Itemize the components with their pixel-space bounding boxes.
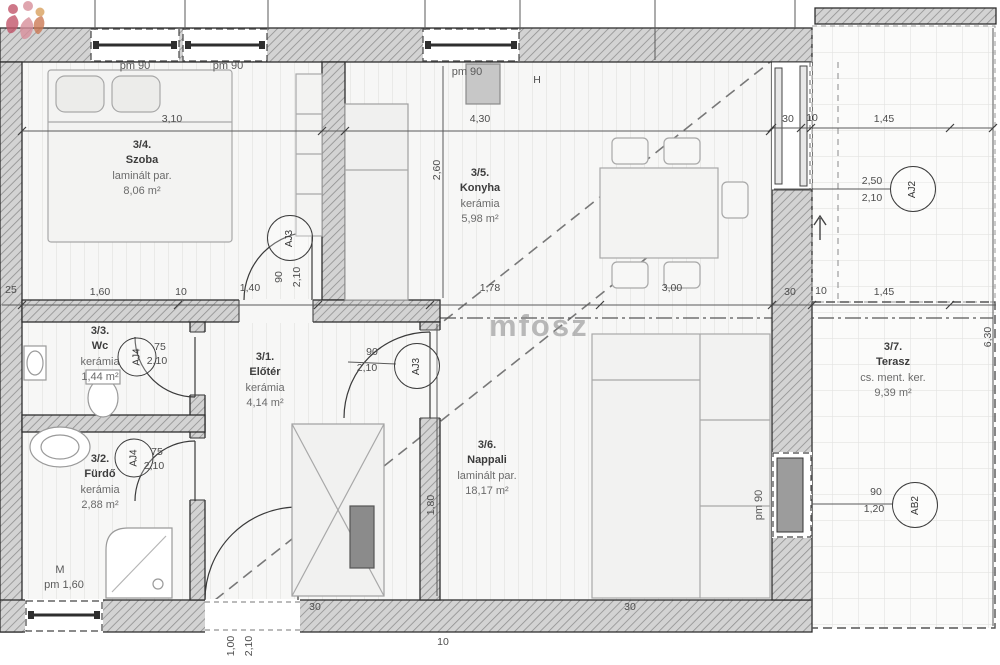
dim-mid-30: 30 (784, 286, 796, 298)
room-number: 3/1. (245, 350, 284, 365)
dim-mid-25: 25 (5, 284, 17, 296)
szoba-door-tag: AJ3 (267, 215, 313, 261)
room-number: 3/4. (112, 138, 171, 153)
room-area: 1,44 m² (80, 370, 119, 385)
terrace-door-tag: AJ2 (890, 166, 936, 212)
dim-vert-180: 1,80 (425, 495, 437, 515)
window-label-szoba-left: pm 90 (120, 60, 151, 72)
room-name: Szoba (112, 153, 171, 168)
room-number: 3/5. (460, 166, 500, 181)
room-area: 8,06 m² (112, 184, 171, 199)
nappali-door-width: 90 (366, 346, 378, 358)
room-floor: cs. ment. ker. (860, 371, 925, 386)
room-name: Előtér (245, 365, 284, 380)
window-label-konyha: pm 90 (452, 66, 483, 78)
tag-text: AJ3 (284, 229, 295, 246)
room-number: 3/3. (80, 324, 119, 339)
room-area: 2,88 m² (80, 498, 119, 513)
room-floor: kerámia (460, 197, 500, 212)
dim-mid-140: 1,40 (240, 282, 260, 294)
dim-vert-630: 6,30 (982, 327, 994, 347)
room-floor: kerámia (245, 381, 284, 396)
room-label-furdo: 3/2. Fürdő kerámia 2,88 m² (80, 452, 119, 514)
room-number: 3/7. (860, 340, 925, 355)
dim-mid-10: 10 (175, 286, 187, 298)
terrace-door-height: 2,10 (862, 192, 882, 204)
dim-mid-300: 3,00 (662, 282, 682, 294)
nappali-door-height: 2,10 (357, 362, 377, 374)
tag-text: AJ2 (907, 180, 918, 197)
room-name: Terasz (860, 355, 925, 370)
room-label-eloter: 3/1. Előtér kerámia 4,14 m² (245, 350, 284, 412)
dim-bottom-30a: 30 (309, 601, 321, 613)
right-window-height: 1,20 (864, 503, 884, 515)
dim-vert-260: 2,60 (431, 160, 443, 180)
right-window-width: 90 (870, 486, 882, 498)
dim-mid-145: 1,45 (874, 286, 894, 298)
room-name: Nappali (457, 453, 516, 468)
watermark-text: mfosz (489, 308, 589, 344)
fridge-label: H (533, 74, 541, 86)
nappali-door-tag: AJ3 (394, 343, 440, 389)
right-window-tag: AB2 (892, 482, 938, 528)
tag-text: AJ3 (411, 357, 422, 374)
room-label-wc: 3/3. Wc kerámia 1,44 m² (80, 324, 119, 386)
szoba-door-height: 2,10 (291, 267, 303, 287)
room-floor: kerámia (80, 483, 119, 498)
room-area: 9,39 m² (860, 386, 925, 401)
dim-szoba-top: 3,10 (162, 113, 182, 125)
dim-bottom-10: 10 (437, 636, 449, 648)
tag-text: AJ4 (128, 449, 139, 466)
room-label-szoba: 3/4. Szoba laminált par. 8,06 m² (112, 138, 171, 200)
room-label-terasz: 3/7. Terasz cs. ment. ker. 9,39 m² (860, 340, 925, 402)
furdo-door-height: 2,10 (144, 460, 164, 472)
room-floor: laminált par. (112, 169, 171, 184)
floor-plan: 3/4. Szoba laminált par. 8,06 m² 3/5. Ko… (0, 0, 1000, 665)
room-floor: laminált par. (457, 469, 516, 484)
dim-mid-10b: 10 (815, 285, 827, 297)
tag-text: AJ4 (131, 348, 142, 365)
dim-mid-160: 1,60 (90, 286, 110, 298)
room-floor: kerámia (80, 355, 119, 370)
room-label-konyha: 3/5. Konyha kerámia 5,98 m² (460, 166, 500, 228)
window-label-right-wall: pm 90 (753, 490, 765, 521)
entry-door-height: 2,10 (243, 636, 255, 656)
furdo-door-width: 75 (151, 446, 163, 458)
room-name: Wc (80, 339, 119, 354)
room-label-nappali: 3/6. Nappali laminált par. 18,17 m² (457, 438, 516, 500)
window-label-bath-letter: M (55, 564, 64, 576)
dim-mid-178: 1,78 (480, 282, 500, 294)
room-name: Konyha (460, 181, 500, 196)
dim-konyha-top: 4,30 (470, 113, 490, 125)
dim-bottom-30b: 30 (624, 601, 636, 613)
mfosz-logo-icon (0, 0, 50, 46)
room-area: 4,14 m² (245, 396, 284, 411)
tag-text: AB2 (910, 496, 921, 515)
room-name: Fürdő (80, 467, 119, 482)
room-number: 3/6. (457, 438, 516, 453)
room-area: 18,17 m² (457, 484, 516, 499)
dim-topright-30: 30 (782, 113, 794, 125)
terrace-door-width: 2,50 (862, 175, 882, 187)
wc-door-width: 75 (154, 341, 166, 353)
window-label-bath-size: pm 1,60 (44, 579, 84, 591)
wc-door-height: 2,10 (147, 355, 167, 367)
dim-topright-145: 1,45 (874, 113, 894, 125)
dim-topright-10: 10 (806, 112, 818, 124)
szoba-door-width: 90 (273, 271, 285, 283)
room-area: 5,98 m² (460, 212, 500, 227)
window-label-szoba-right: pm 90 (213, 60, 244, 72)
entry-door-width: 1,00 (225, 636, 237, 656)
